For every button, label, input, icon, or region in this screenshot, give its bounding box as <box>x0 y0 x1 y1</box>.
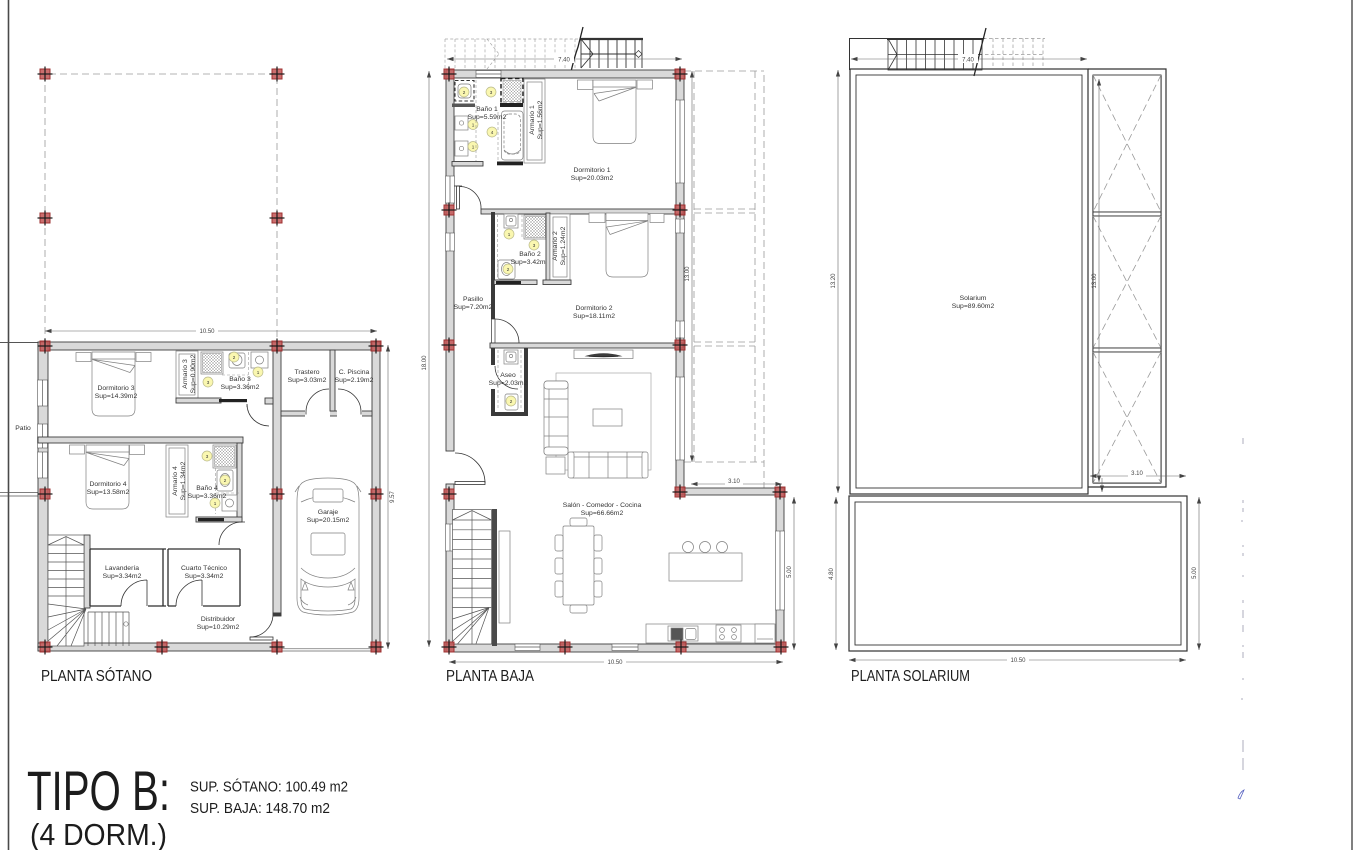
svg-text:Salón - Comedor - Cocina: Salón - Comedor - Cocina <box>563 502 642 509</box>
svg-text:5.00: 5.00 <box>787 566 793 578</box>
svg-text:Garaje: Garaje <box>318 509 339 516</box>
svg-text:Dormitorio 3: Dormitorio 3 <box>97 385 134 392</box>
svg-text:Armario 2: Armario 2 <box>552 231 559 261</box>
svg-text:Sup=66.66m2: Sup=66.66m2 <box>581 510 624 517</box>
svg-text:Sup=3.34m2: Sup=3.34m2 <box>185 573 224 580</box>
svg-text:Sup=14.39m2: Sup=14.39m2 <box>95 393 138 400</box>
svg-text:Baño 2: Baño 2 <box>519 251 541 258</box>
svg-text:Dormitorio 4: Dormitorio 4 <box>89 481 126 488</box>
svg-text:Sup=13.58m2: Sup=13.58m2 <box>87 489 130 496</box>
svg-text:SUP. BAJA: 148.70 m2: SUP. BAJA: 148.70 m2 <box>190 801 330 817</box>
svg-text:10.50: 10.50 <box>199 329 215 335</box>
svg-text:1: 1 <box>472 145 475 150</box>
svg-text:Sup=20.03m2: Sup=20.03m2 <box>571 175 614 182</box>
svg-text:Sup=2.19m2: Sup=2.19m2 <box>335 377 374 384</box>
svg-text:2: 2 <box>224 478 227 483</box>
svg-text:Sup=1.34m2: Sup=1.34m2 <box>180 461 187 500</box>
svg-text:2: 2 <box>507 267 510 272</box>
svg-text:Patio: Patio <box>15 425 31 432</box>
svg-text:5.00: 5.00 <box>1192 567 1198 579</box>
svg-text:18.00: 18.00 <box>422 355 428 371</box>
svg-text:TIPO B:: TIPO B: <box>27 759 170 822</box>
svg-text:Sup=3.36m2: Sup=3.36m2 <box>221 384 260 391</box>
svg-text:Armario 3: Armario 3 <box>182 359 189 389</box>
svg-text:PLANTA BAJA: PLANTA BAJA <box>446 668 535 685</box>
svg-text:Sup=3.03m2: Sup=3.03m2 <box>288 377 327 384</box>
svg-text:13.20: 13.20 <box>831 273 837 289</box>
svg-text:13.00: 13.00 <box>1092 273 1098 289</box>
svg-text:PLANTA SOLARIUM: PLANTA SOLARIUM <box>851 668 970 685</box>
svg-text:Distribuidor: Distribuidor <box>201 616 236 623</box>
svg-text:Aseo: Aseo <box>500 372 516 379</box>
svg-text:Pasillo: Pasillo <box>463 296 483 303</box>
svg-text:3: 3 <box>206 454 209 459</box>
svg-text:3: 3 <box>207 380 210 385</box>
svg-text:Lavandería: Lavandería <box>105 565 139 572</box>
svg-text:7.40: 7.40 <box>558 58 570 64</box>
svg-text:Sup=2.03m2: Sup=2.03m2 <box>489 380 528 387</box>
svg-text:Sup=3.34m2: Sup=3.34m2 <box>103 573 142 580</box>
svg-text:Dormitorio 2: Dormitorio 2 <box>575 305 612 312</box>
svg-text:7.40: 7.40 <box>962 58 974 64</box>
svg-text:3.10: 3.10 <box>1131 471 1143 477</box>
svg-text:Cuarto Técnico: Cuarto Técnico <box>181 565 227 572</box>
svg-text:(4 DORM.): (4 DORM.) <box>30 817 167 850</box>
svg-text:Baño 3: Baño 3 <box>229 376 251 383</box>
svg-text:Sup=7.20m2: Sup=7.20m2 <box>454 304 493 311</box>
svg-text:4: 4 <box>491 130 494 135</box>
svg-text:10.50: 10.50 <box>607 660 623 666</box>
svg-text:Sup=5.59m2: Sup=5.59m2 <box>468 114 507 121</box>
svg-text:3: 3 <box>490 90 493 95</box>
svg-text:Sup=3.36m2: Sup=3.36m2 <box>188 493 227 500</box>
svg-text:Sup=1.24m2: Sup=1.24m2 <box>560 226 567 265</box>
svg-text:SUP. SÓTANO: 100.49 m2: SUP. SÓTANO: 100.49 m2 <box>190 779 348 796</box>
svg-text:Sup=0.90m2: Sup=0.90m2 <box>190 354 197 393</box>
svg-text:3: 3 <box>533 243 536 248</box>
svg-text:Armario 4: Armario 4 <box>172 466 179 496</box>
svg-text:13.00: 13.00 <box>685 266 691 282</box>
svg-text:PLANTA SÓTANO: PLANTA SÓTANO <box>41 668 152 685</box>
svg-text:Armario 1: Armario 1 <box>529 105 536 135</box>
svg-text:Dormitorio 1: Dormitorio 1 <box>573 167 610 174</box>
svg-text:Baño 4: Baño 4 <box>196 485 218 492</box>
svg-text:Trastero: Trastero <box>294 369 319 376</box>
svg-text:1: 1 <box>472 123 475 128</box>
svg-text:4.80: 4.80 <box>829 568 835 580</box>
svg-text:1: 1 <box>508 232 511 237</box>
svg-text:Sup=18.11m2: Sup=18.11m2 <box>573 313 615 320</box>
svg-text:1: 1 <box>257 370 260 375</box>
svg-text:1: 1 <box>214 501 217 506</box>
svg-text:Sup=3.42m2: Sup=3.42m2 <box>511 259 550 266</box>
svg-text:Sup=10.29m2: Sup=10.29m2 <box>197 624 240 631</box>
svg-text:C. Piscina: C. Piscina <box>339 369 370 376</box>
svg-text:Sup=20.15m2: Sup=20.15m2 <box>307 517 350 524</box>
svg-text:2: 2 <box>510 399 513 404</box>
svg-text:Sup=89.60m2: Sup=89.60m2 <box>952 303 995 310</box>
svg-text:10.50: 10.50 <box>1010 658 1026 664</box>
svg-text:3.10: 3.10 <box>728 479 740 485</box>
svg-text:Sup=1.56m2: Sup=1.56m2 <box>537 100 544 139</box>
svg-text:2: 2 <box>463 90 466 95</box>
svg-text:2: 2 <box>233 355 236 360</box>
svg-text:Baño 1: Baño 1 <box>476 106 498 113</box>
svg-text:9.57: 9.57 <box>390 491 396 503</box>
svg-text:Solarium: Solarium <box>960 295 987 302</box>
